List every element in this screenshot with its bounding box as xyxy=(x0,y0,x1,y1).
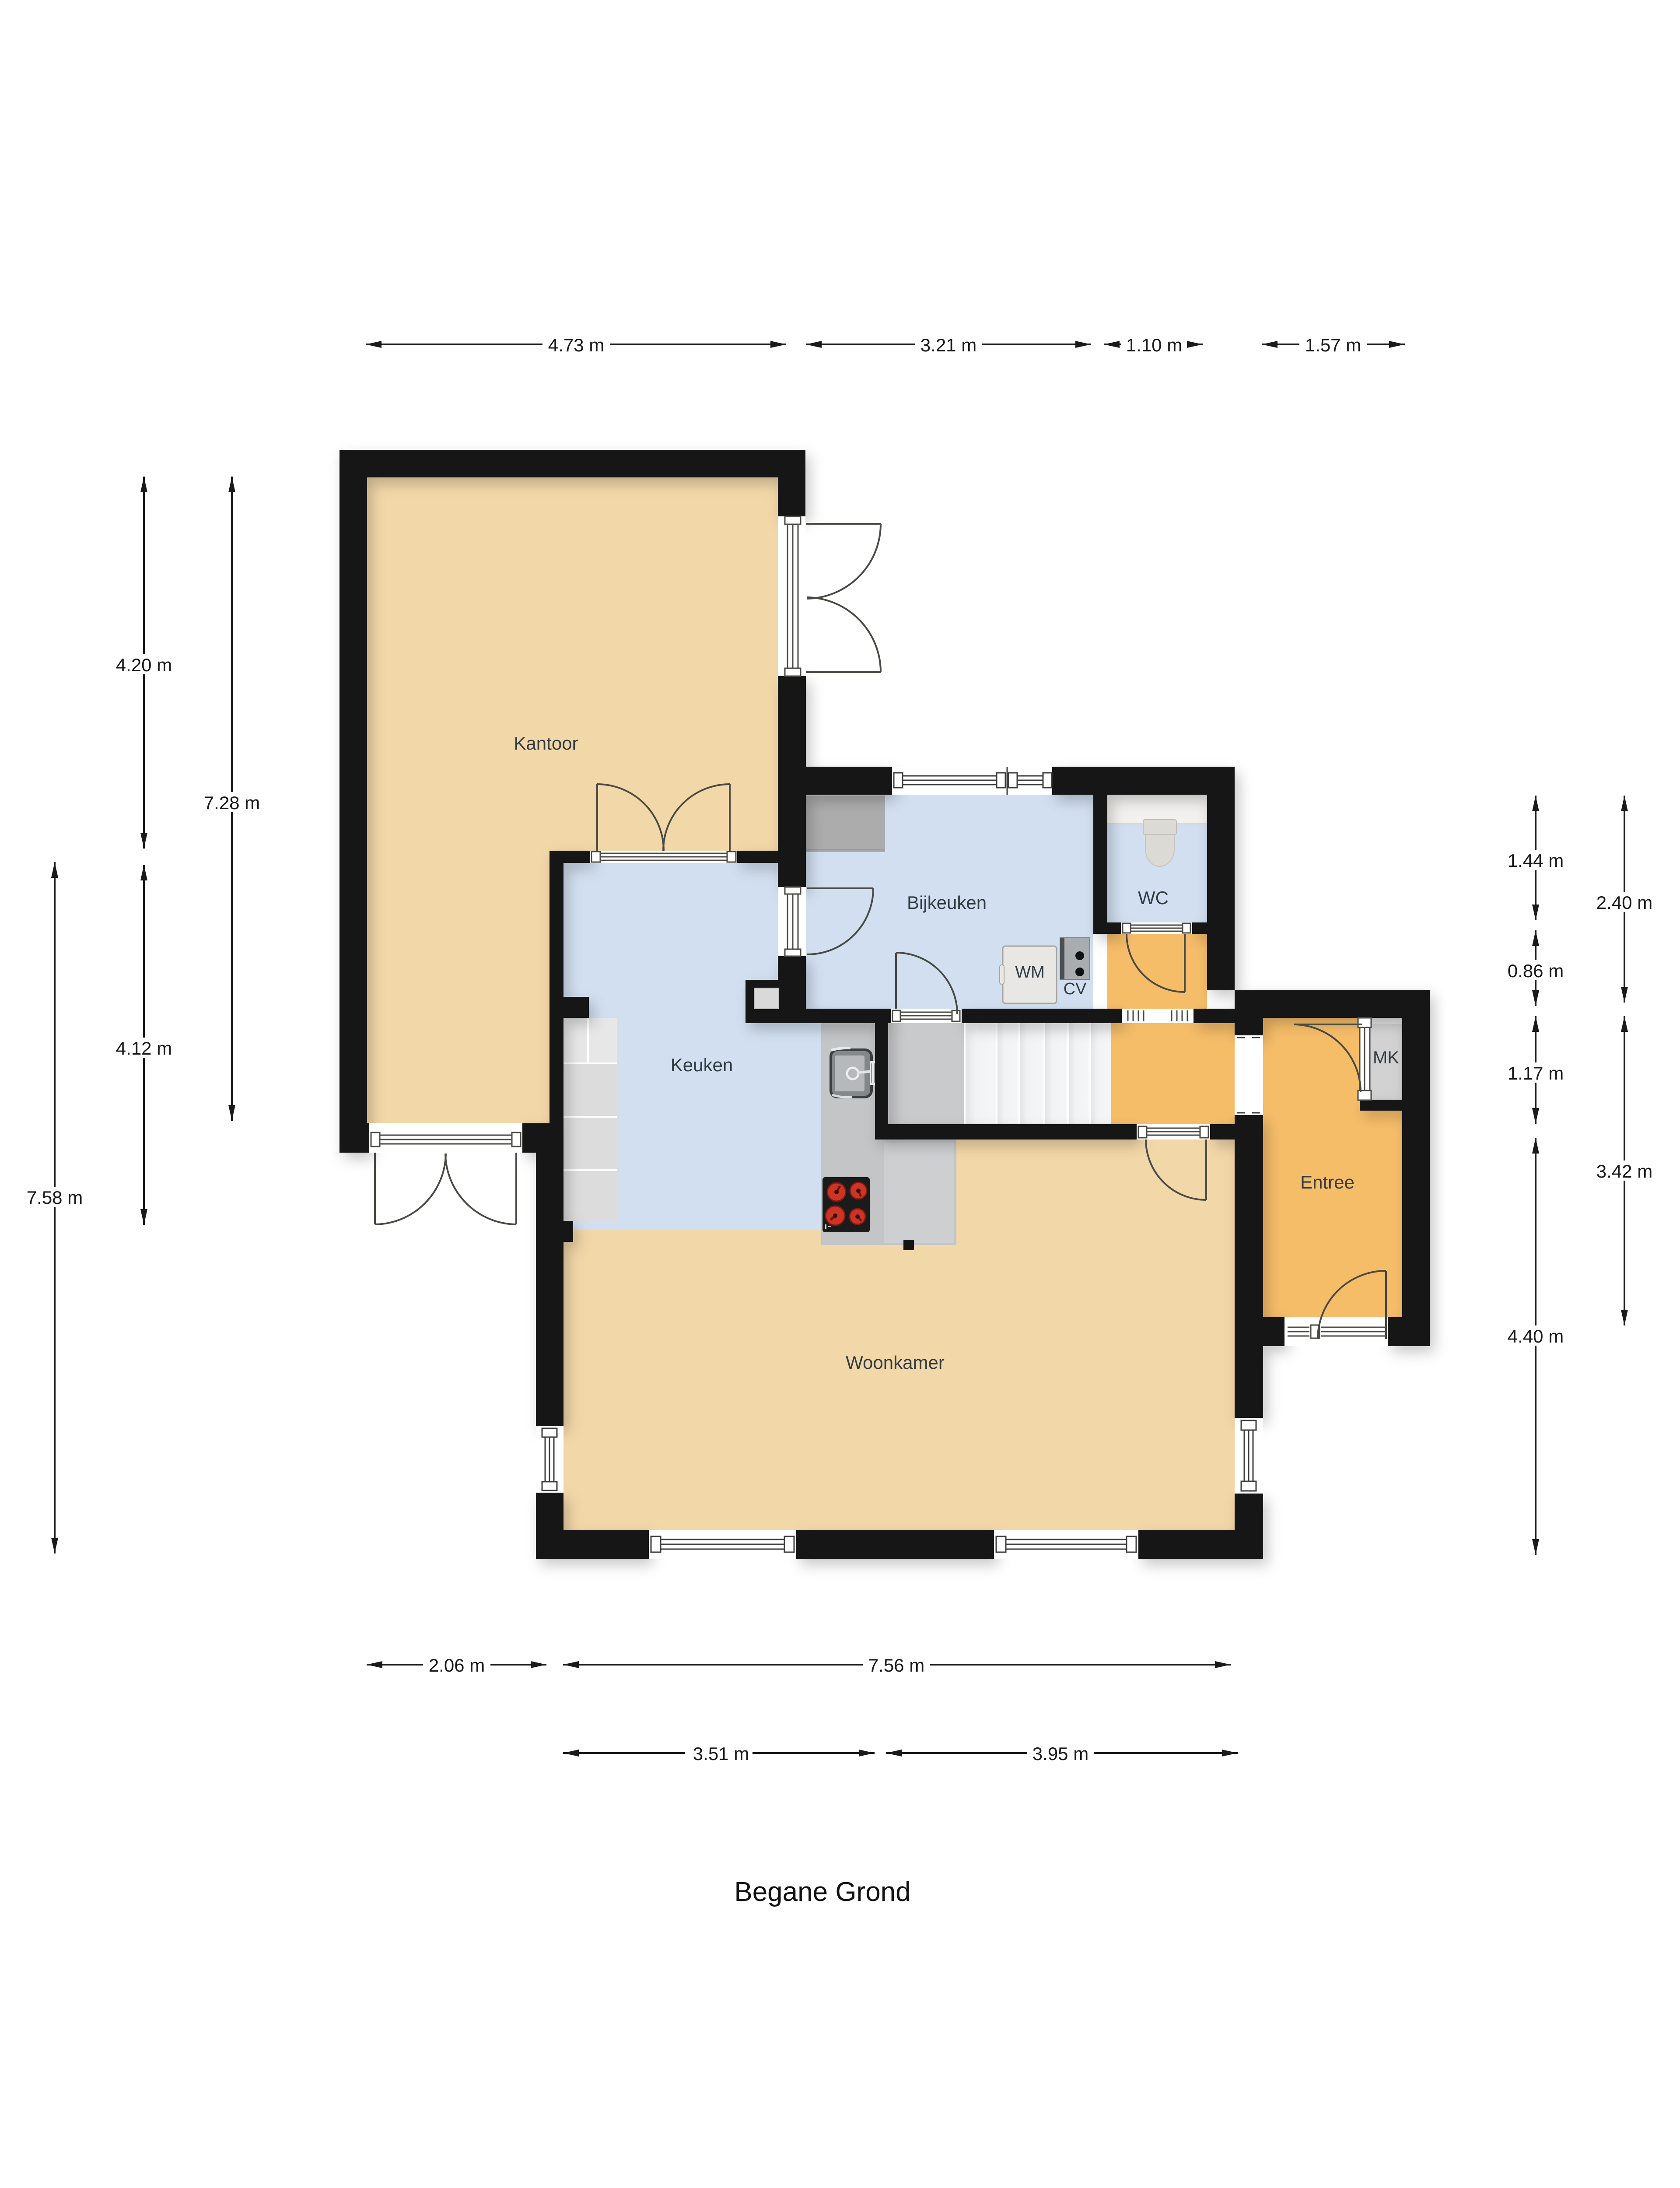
svg-text:3.51 m: 3.51 m xyxy=(693,1743,749,1764)
svg-text:3.21 m: 3.21 m xyxy=(920,335,976,355)
svg-text:Bijkeuken: Bijkeuken xyxy=(907,892,987,913)
svg-text:1.44 m: 1.44 m xyxy=(1508,850,1564,871)
svg-text:1.17 m: 1.17 m xyxy=(1508,1063,1564,1083)
svg-text:Keuken: Keuken xyxy=(671,1055,733,1075)
svg-text:Entree: Entree xyxy=(1300,1172,1354,1192)
svg-text:4.20 m: 4.20 m xyxy=(116,655,172,675)
svg-text:WC: WC xyxy=(1138,887,1169,908)
svg-text:0.86 m: 0.86 m xyxy=(1508,961,1564,981)
svg-text:7.56 m: 7.56 m xyxy=(868,1655,924,1676)
svg-text:4.73 m: 4.73 m xyxy=(548,335,604,355)
svg-text:2.40 m: 2.40 m xyxy=(1596,892,1652,913)
svg-text:1.10 m: 1.10 m xyxy=(1126,335,1182,355)
svg-text:Begane Grond: Begane Grond xyxy=(734,1877,910,1907)
svg-text:MK: MK xyxy=(1373,1048,1399,1067)
svg-text:7.58 m: 7.58 m xyxy=(27,1187,83,1208)
svg-text:CV: CV xyxy=(1064,980,1087,998)
svg-text:2.06 m: 2.06 m xyxy=(429,1655,485,1676)
svg-text:Woonkamer: Woonkamer xyxy=(846,1352,945,1373)
svg-text:Kantoor: Kantoor xyxy=(514,733,578,754)
svg-text:WM: WM xyxy=(1015,963,1045,982)
svg-text:4.40 m: 4.40 m xyxy=(1508,1326,1564,1346)
svg-text:3.95 m: 3.95 m xyxy=(1032,1743,1088,1764)
svg-text:1.57 m: 1.57 m xyxy=(1305,335,1361,355)
svg-text:4.12 m: 4.12 m xyxy=(116,1038,172,1059)
svg-text:7.28 m: 7.28 m xyxy=(204,792,260,813)
svg-text:3.42 m: 3.42 m xyxy=(1596,1161,1652,1182)
